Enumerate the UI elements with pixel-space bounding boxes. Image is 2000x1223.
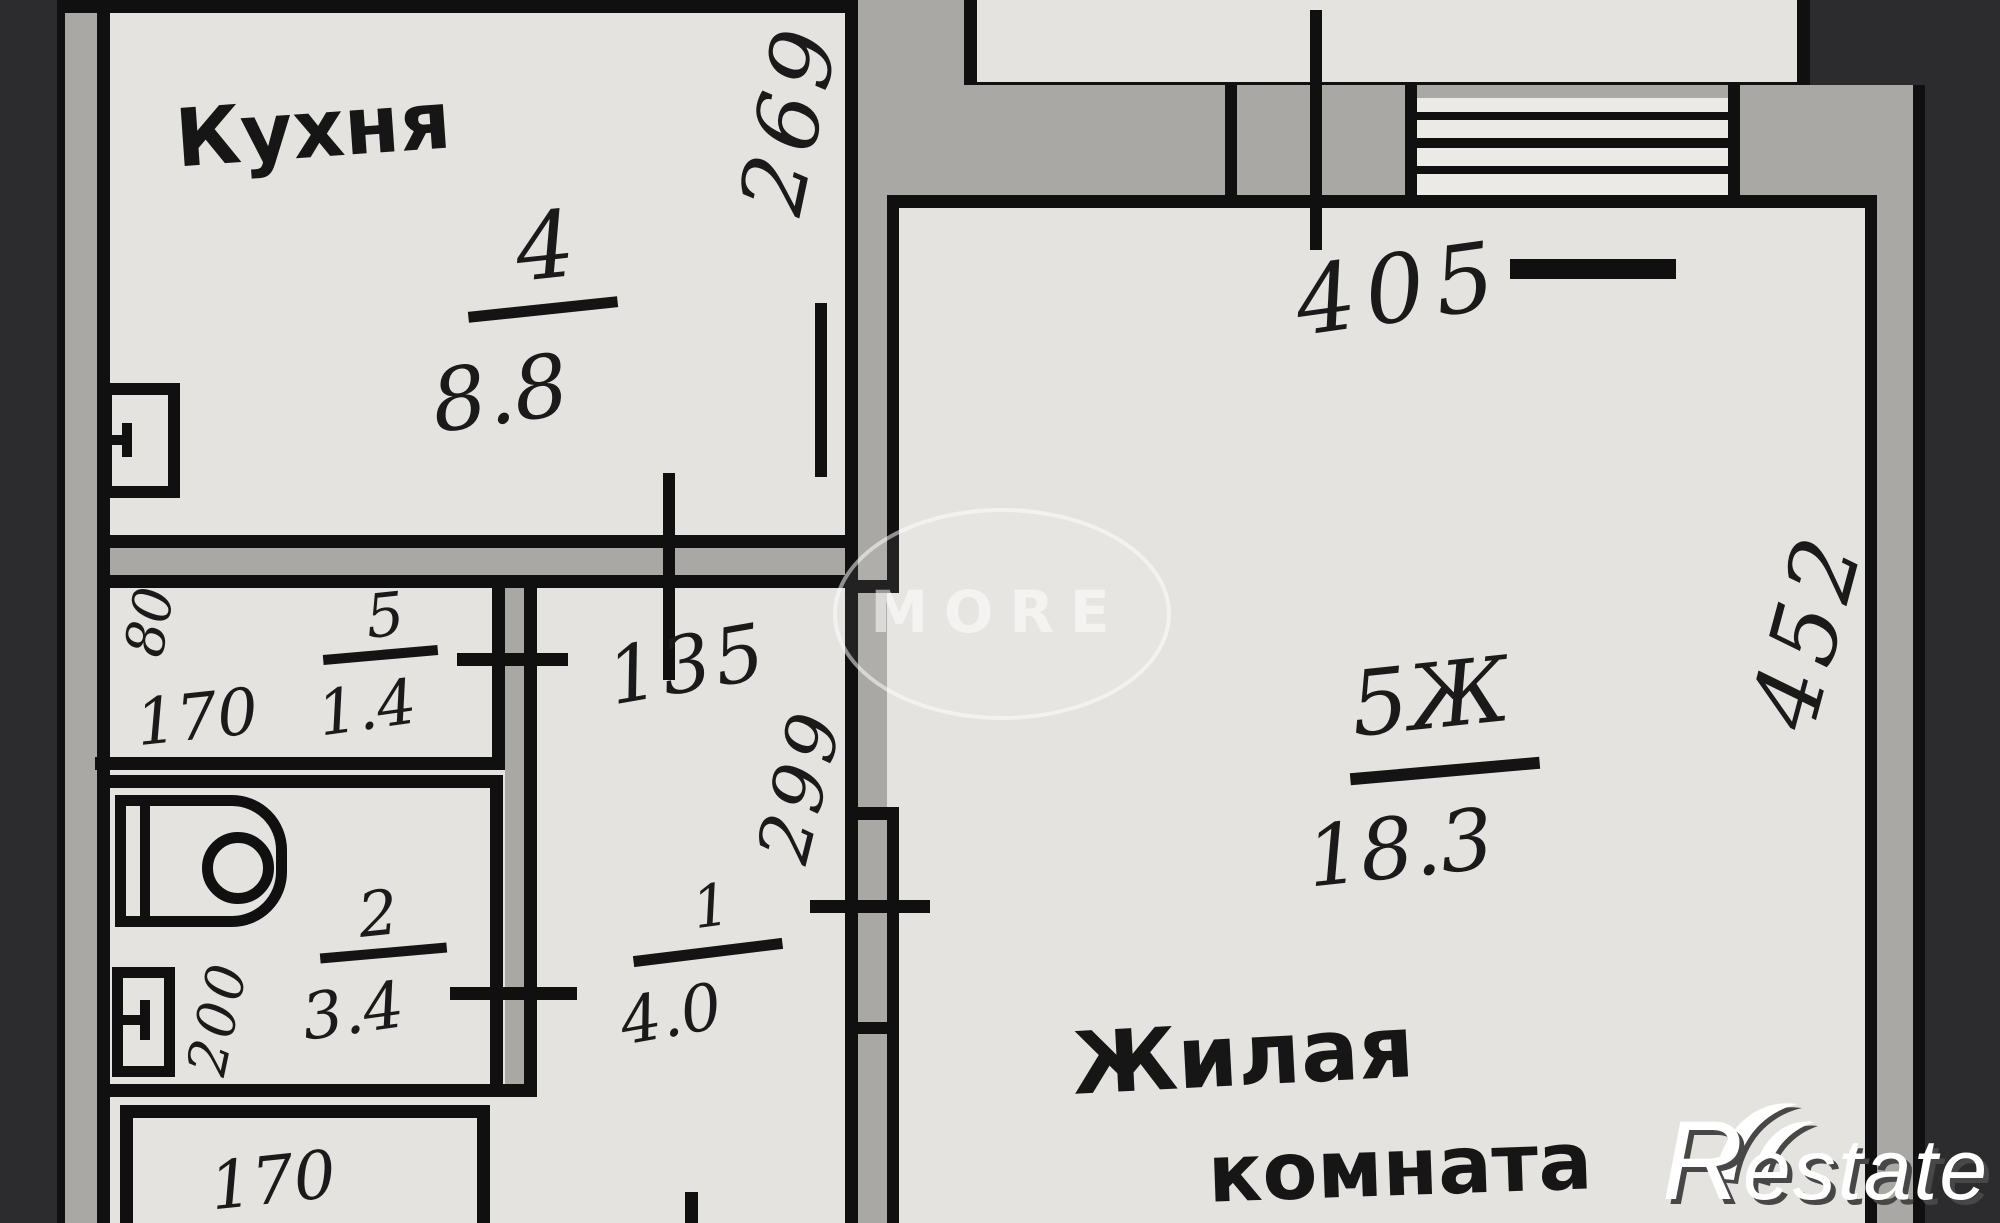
room5-right-border [492, 575, 505, 770]
toilet-bowl-circle [202, 832, 274, 904]
window-right-jamb [1728, 85, 1740, 208]
wall-right-fill [1877, 85, 1913, 1223]
dim-170-box: 170 [207, 1142, 339, 1221]
outside-area [1810, 0, 2000, 85]
window-line-1 [1417, 112, 1728, 120]
box170-left-border [120, 1105, 133, 1223]
hall-area: 4.0 [615, 975, 726, 1056]
tick-room5 [457, 653, 568, 666]
room2-bottom-border [97, 1084, 503, 1097]
tick-living-wall [810, 900, 930, 913]
kitchen-niche-tick-h [100, 435, 125, 445]
wall-band-divider [1225, 85, 1237, 208]
window-left-jamb [1405, 85, 1417, 208]
room2-area: 3.4 [298, 973, 408, 1051]
wall-upper-room-right [1797, 0, 1810, 90]
dim-170-storage: 170 [133, 680, 261, 756]
kitchen-number: 4 [511, 198, 579, 296]
wall-crossing-line [845, 1022, 899, 1034]
wall-kitchen-bottom-fill [110, 548, 845, 575]
watermark-text: MORE [870, 578, 1125, 646]
room5-number: 5 [363, 584, 407, 648]
box170-right-border [477, 1105, 490, 1223]
door-leaf-kitchen [815, 303, 827, 477]
kitchen-name: Кухня [173, 80, 454, 179]
room2-right-border [490, 775, 503, 1097]
hall-number: 1 [689, 875, 734, 938]
dim-405: 405 [1290, 229, 1510, 351]
wall-left-outer-line [57, 0, 65, 1223]
room5-area: 1.4 [314, 670, 420, 745]
wall-kitchen-top [57, 0, 860, 13]
restate-logo-initial: R [1662, 1098, 1743, 1223]
restate-logo-rest: estate [1743, 1122, 1989, 1218]
wall-left-inner-line [97, 0, 110, 1223]
wall-right-inner-line [1865, 195, 1877, 1223]
wall-fill-above-band [858, 0, 964, 85]
living-number: 5Ж [1347, 645, 1514, 751]
wall-upper-room-left [964, 0, 977, 90]
room2-number: 2 [355, 881, 401, 947]
wall-band-top [858, 85, 1913, 195]
tick-405 [1310, 10, 1322, 250]
dim-80: 80 [117, 583, 182, 660]
box170-top-border [120, 1105, 490, 1118]
door-jamb-bottom [845, 807, 899, 820]
living-name-line1: Жилая [1070, 1004, 1416, 1108]
wall-left-fill [65, 0, 97, 1223]
kitchen-area: 8.8 [426, 342, 573, 446]
wall-living-left-lower [887, 807, 899, 1223]
room2-top-border [97, 775, 503, 788]
tick-hall [450, 987, 577, 1000]
wall-right-outer-line [1913, 85, 1925, 1223]
restate-logo: Restate [1662, 1096, 1989, 1223]
window-line-3 [1417, 166, 1728, 174]
toilet-tank-line [140, 800, 150, 922]
wall-band-bottom-line [858, 195, 1877, 208]
living-name-line2: комната [1207, 1121, 1594, 1214]
radiator [1510, 259, 1676, 279]
wall-kitchen-bottom-bottom-line [110, 575, 845, 588]
living-area: 18.3 [1303, 796, 1498, 899]
wall-living-left-fill [858, 195, 887, 1223]
window-line-2 [1417, 138, 1728, 148]
floor-plan: Кухня 4 8.8 269 405 452 135 299 80 170 5… [0, 0, 2000, 1223]
tick-bottom [685, 1192, 698, 1223]
wall-kitchen-bottom-top-line [110, 535, 845, 548]
bathroom-niche-tick-h [112, 1015, 142, 1025]
